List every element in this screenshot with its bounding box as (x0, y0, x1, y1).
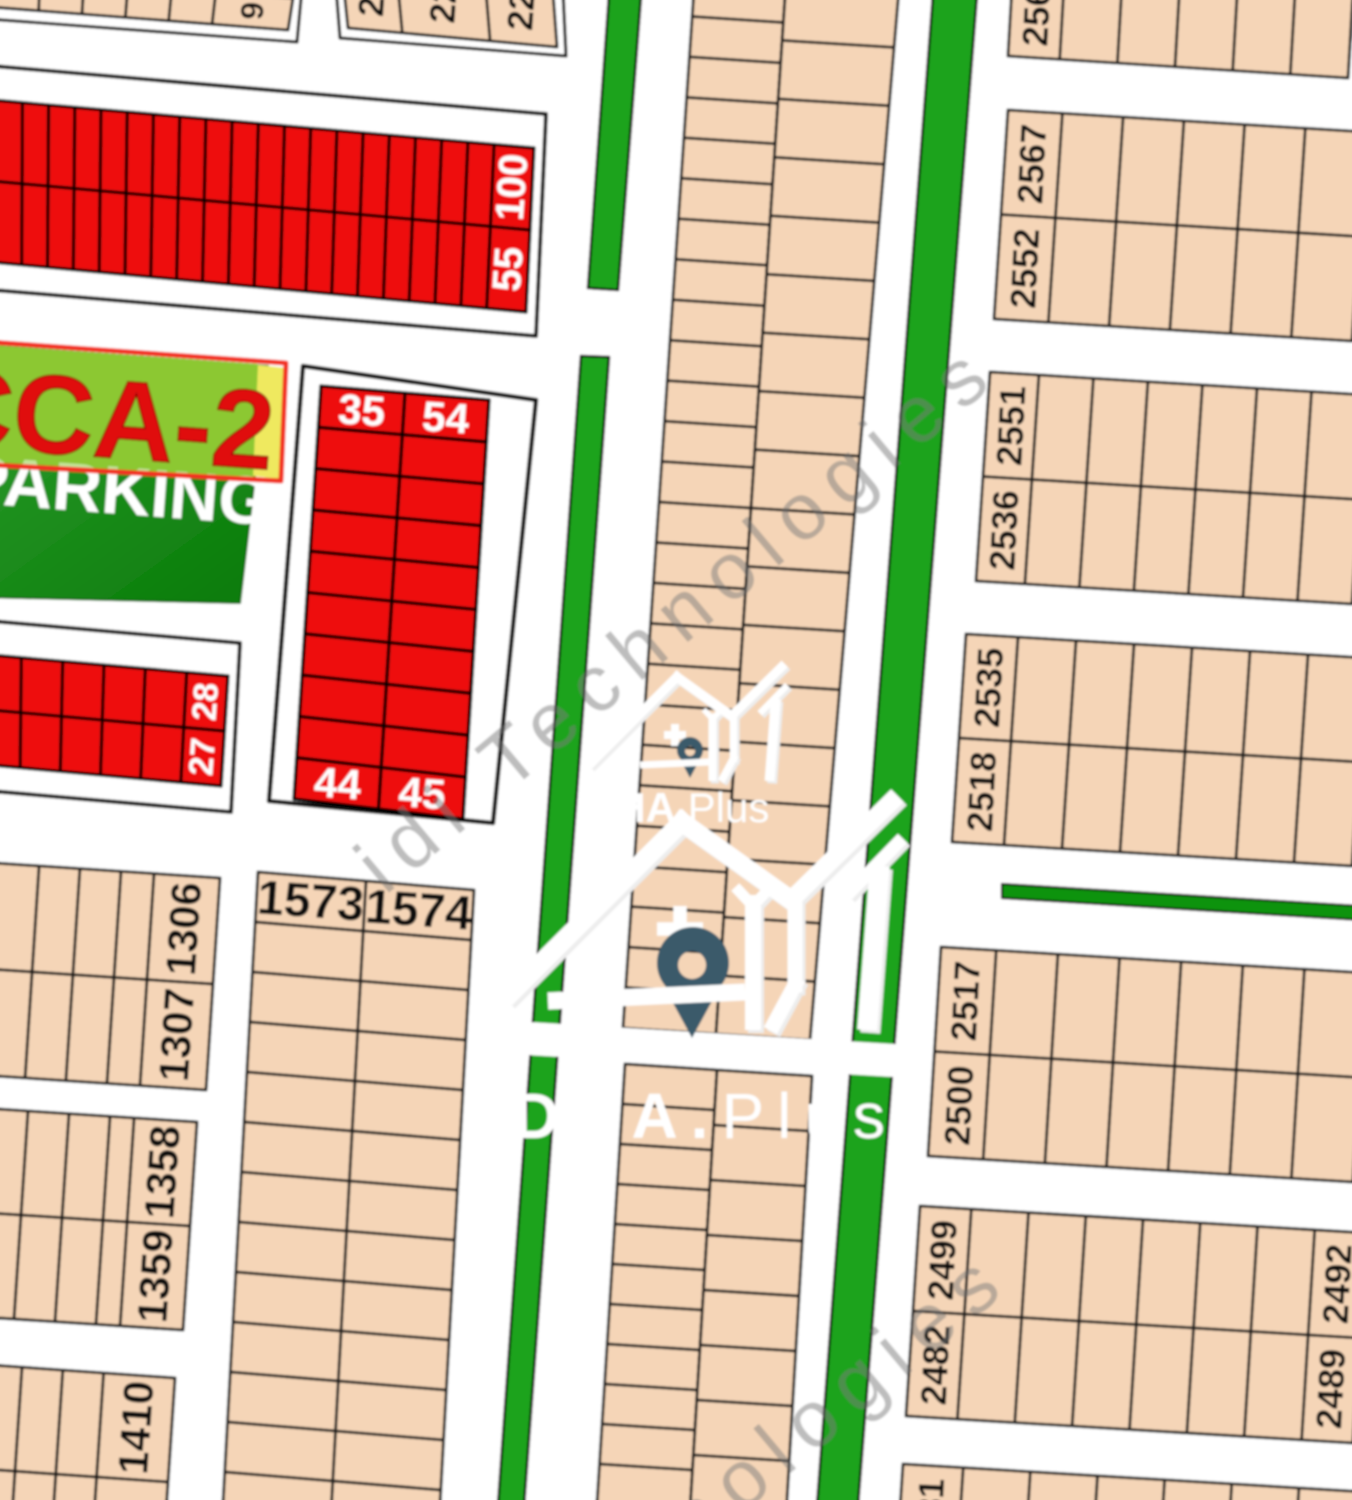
svg-text:28: 28 (185, 682, 226, 722)
svg-text:27: 27 (182, 737, 223, 777)
svg-text:22: 22 (421, 0, 465, 25)
svg-text:2492: 2492 (1315, 1243, 1352, 1325)
svg-text:54: 54 (421, 392, 472, 442)
svg-text:2535: 2535 (966, 647, 1011, 729)
svg-text:9: 9 (234, 1, 271, 21)
svg-text:1573: 1573 (255, 871, 365, 931)
svg-text:1306: 1306 (157, 881, 210, 977)
svg-text:2517: 2517 (943, 960, 988, 1042)
svg-text:2567: 2567 (1009, 123, 1054, 205)
svg-text:2552: 2552 (1002, 227, 1047, 309)
svg-text:2518: 2518 (959, 751, 1004, 833)
svg-text:CCA-2: CCA-2 (0, 343, 279, 493)
svg-text:55: 55 (485, 245, 532, 292)
svg-text:35: 35 (337, 385, 387, 435)
svg-text:2481: 2481 (907, 1477, 952, 1500)
svg-text:1410: 1410 (109, 1379, 162, 1475)
svg-text:2568: 2568 (1014, 0, 1059, 47)
svg-text:1307: 1307 (150, 987, 203, 1083)
svg-text:22: 22 (350, 0, 394, 18)
svg-text:1358: 1358 (135, 1124, 188, 1220)
svg-text:100: 100 (488, 152, 537, 222)
svg-text:DHA.Plus: DHA.Plus (513, 1080, 898, 1152)
svg-text:2500: 2500 (936, 1064, 981, 1146)
svg-text:44: 44 (313, 758, 364, 808)
svg-text:2489: 2489 (1308, 1348, 1352, 1430)
svg-text:22: 22 (499, 0, 543, 32)
svg-text:2536: 2536 (981, 489, 1026, 571)
svg-text:1359: 1359 (128, 1228, 181, 1324)
